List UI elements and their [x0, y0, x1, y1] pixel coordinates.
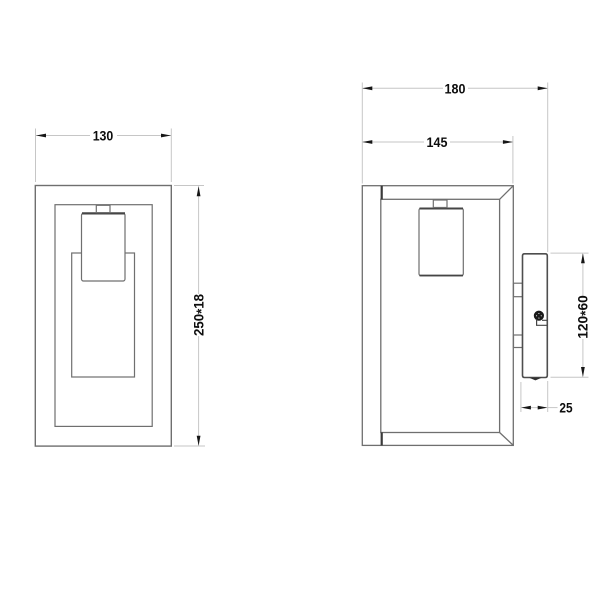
svg-text:120*60: 120*60 [575, 295, 594, 339]
svg-text:250*18: 250*18 [191, 294, 210, 336]
svg-text:25: 25 [559, 400, 572, 416]
svg-text:145: 145 [427, 134, 448, 150]
svg-text:130: 130 [93, 128, 114, 144]
svg-text:180: 180 [445, 80, 466, 96]
